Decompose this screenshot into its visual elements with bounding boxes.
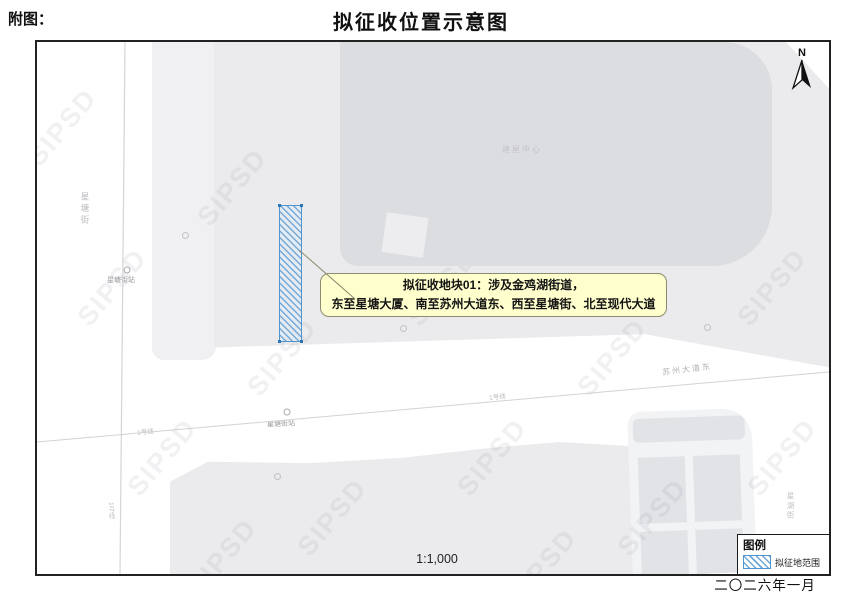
metro-line-label: 1号线 <box>137 425 155 437</box>
grid-band <box>632 415 745 443</box>
road-line-vertical <box>120 42 125 574</box>
metro-line-label: 1号线 <box>489 390 507 402</box>
callout-line1: 拟征收地块01：涉及金鸡湖街道， <box>321 276 666 295</box>
north-label: N <box>789 48 815 58</box>
date-label: 二〇二六年一月 <box>697 574 833 594</box>
page-title: 拟征收位置示意图 <box>0 6 842 35</box>
callout-bubble: 拟征收地块01：涉及金鸡湖街道， 东至星塘大厦、南至苏州大道东、西至星塘街、北至… <box>320 273 667 317</box>
legend-title: 图例 <box>743 537 831 553</box>
survey-point-icon <box>274 473 281 480</box>
north-arrow-icon <box>789 58 815 90</box>
street-name-label: 星湖街 <box>785 492 796 521</box>
survey-point-icon <box>400 325 407 332</box>
street-name-label: 星塘街 <box>79 192 91 227</box>
figure-page: 附图： 拟征收位置示意图 SIPSD SIPSD SIPSD SIPSD SIP… <box>0 0 842 595</box>
building-notch <box>381 212 428 257</box>
watermark: SIPSD <box>35 83 104 173</box>
parcel-left-band <box>152 42 216 360</box>
expropriation-parcel <box>279 205 302 342</box>
parcel-vertex <box>300 204 303 207</box>
station-marker-icon <box>124 267 130 273</box>
survey-point-icon <box>704 324 711 331</box>
metro-station-label: 星塘街站 <box>107 275 135 285</box>
north-arrow: N <box>789 48 815 92</box>
watermark: SIPSD <box>71 243 153 333</box>
parcel-vertex <box>278 204 281 207</box>
metro-line-label: 1号线 <box>105 502 115 519</box>
parcel-vertex <box>278 340 281 343</box>
legend-box: 图例 拟征地范围 <box>737 534 831 576</box>
road-name-label: 苏州大道东 <box>662 361 713 378</box>
metro-station-label: 星塘街站 <box>267 418 295 429</box>
grid-window <box>693 454 742 522</box>
legend-row: 拟征地范围 <box>743 555 831 569</box>
building-label: 建屋中心 <box>467 144 577 155</box>
map-canvas: SIPSD SIPSD SIPSD SIPSD SIPSD SIPSD SIPS… <box>35 40 831 576</box>
grid-window <box>638 456 687 524</box>
scale-label: 1:1,000 <box>367 552 507 566</box>
grid-window <box>640 530 689 576</box>
callout-line2: 东至星塘大厦、南至苏州大道东、西至星塘街、北至现代大道 <box>321 295 666 314</box>
survey-point-icon <box>182 232 189 239</box>
legend-hatch-swatch-icon <box>743 555 771 569</box>
parcel-vertex <box>300 340 303 343</box>
legend-item-label: 拟征地范围 <box>775 556 820 569</box>
station-marker-icon <box>284 409 290 415</box>
